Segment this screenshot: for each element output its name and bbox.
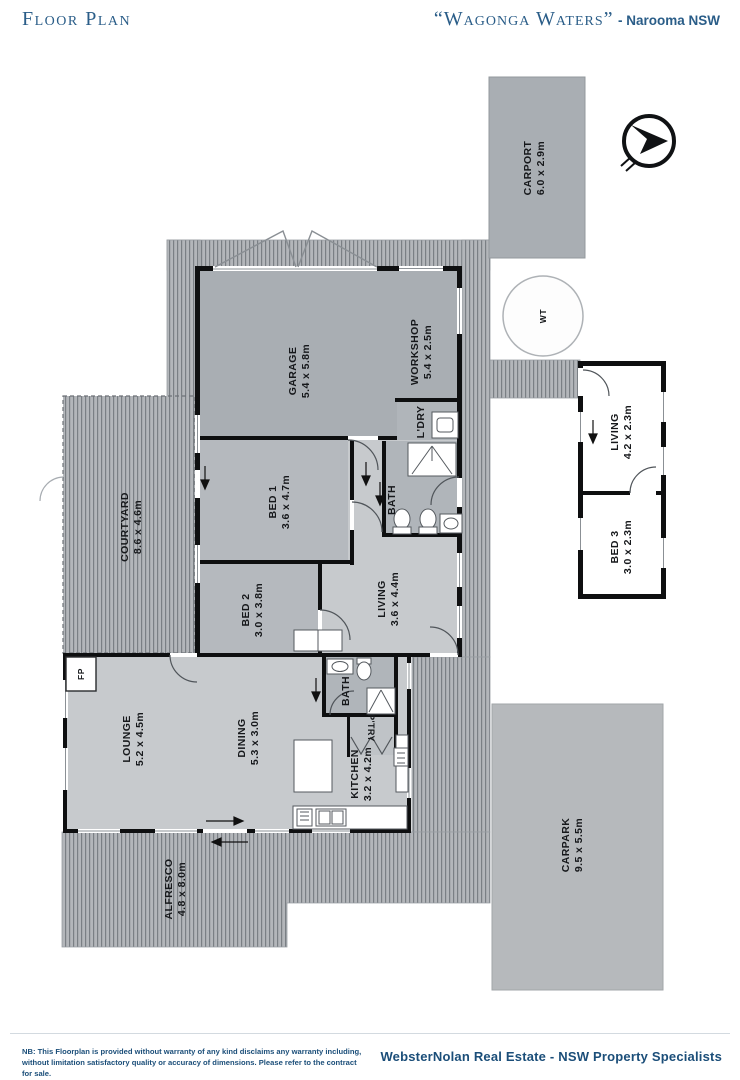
arrow-down-icon xyxy=(589,420,597,443)
svg-text:5.4 x 2.5m: 5.4 x 2.5m xyxy=(422,325,434,379)
svg-text:4.2 x 2.3m: 4.2 x 2.3m xyxy=(622,405,634,459)
room-label-carpark: CARPARK 9.5 x 5.5m xyxy=(560,818,585,873)
room-label-dining: DINING 5.3 x 3.0m xyxy=(236,711,261,765)
disclaimer-line-1: NB: This Floorplan is provided without w… xyxy=(22,1046,367,1057)
alfresco-deck xyxy=(62,832,490,947)
disclaimer-text: NB: This Floorplan is provided without w… xyxy=(22,1046,367,1079)
svg-text:4.8 x 8.0m: 4.8 x 8.0m xyxy=(176,862,188,916)
laundry-tub-icon xyxy=(432,412,458,438)
room-label-bed3: BED 3 3.0 x 2.3m xyxy=(609,520,634,574)
svg-text:8.6 x 4.6m: 8.6 x 4.6m xyxy=(132,500,144,554)
svg-text:BATH: BATH xyxy=(340,676,352,706)
svg-text:CARPORT: CARPORT xyxy=(522,140,534,195)
svg-text:GARAGE: GARAGE xyxy=(287,347,299,396)
water-tank-label: WT xyxy=(538,309,548,324)
property-heading: “Wagonga Waters” - Narooma NSW xyxy=(434,8,720,31)
kitchen-bench xyxy=(394,735,408,792)
footer-divider xyxy=(10,1033,730,1034)
north-arrow-icon xyxy=(621,116,674,171)
floor-plan-canvas: CARPORT 6.0 x 2.9m GARAGE 5.4 x 5.8m WOR… xyxy=(0,0,740,1080)
svg-text:5.2 x 4.5m: 5.2 x 4.5m xyxy=(134,712,146,766)
room-label-kitchen: KITCHEN 3.2 x 4.2m xyxy=(349,747,374,801)
svg-text:LOUNGE: LOUNGE xyxy=(121,715,133,762)
svg-text:6.0 x 2.9m: 6.0 x 2.9m xyxy=(535,141,547,195)
svg-text:3.6 x 4.7m: 3.6 x 4.7m xyxy=(280,475,292,529)
room-label-carport: CARPORT 6.0 x 2.9m xyxy=(522,140,547,195)
svg-text:P'TRY: P'TRY xyxy=(366,714,376,742)
floorplan-page: Floor Plan “Wagonga Waters” - Narooma NS… xyxy=(0,0,740,1080)
basin-icon xyxy=(327,659,353,674)
deck-top-band xyxy=(167,240,490,270)
room-label-bath1: BATH xyxy=(386,485,398,515)
page-header: Floor Plan “Wagonga Waters” - Narooma NS… xyxy=(22,8,720,31)
room-label-workshop: WORKSHOP 5.4 x 2.5m xyxy=(409,319,434,385)
svg-text:CARPARK: CARPARK xyxy=(560,818,572,873)
svg-text:WT: WT xyxy=(538,309,548,324)
deck-rear xyxy=(412,657,490,832)
agency-name: WebsterNolan Real Estate - NSW Property … xyxy=(380,1049,722,1064)
svg-text:5.3 x 3.0m: 5.3 x 3.0m xyxy=(249,711,261,765)
svg-text:BATH: BATH xyxy=(386,485,398,515)
svg-text:3.0 x 3.8m: 3.0 x 3.8m xyxy=(253,583,265,637)
room-label-pantry: P'TRY xyxy=(366,714,376,742)
kitchen-sink-bench xyxy=(293,806,407,829)
svg-text:LIVING: LIVING xyxy=(609,413,621,450)
svg-text:WORKSHOP: WORKSHOP xyxy=(409,319,421,385)
svg-text:ALFRESCO: ALFRESCO xyxy=(163,859,175,920)
room-label-living2: LIVING 4.2 x 2.3m xyxy=(609,405,634,459)
shower-icon xyxy=(367,688,395,714)
svg-text:3.0 x 2.3m: 3.0 x 2.3m xyxy=(622,520,634,574)
svg-text:L'DRY: L'DRY xyxy=(415,406,427,439)
property-location: - Narooma NSW xyxy=(618,13,720,28)
svg-text:9.5 x 5.5m: 9.5 x 5.5m xyxy=(573,818,585,872)
svg-text:KITCHEN: KITCHEN xyxy=(349,749,361,798)
room-label-courtyard: COURTYARD 8.6 x 4.6m xyxy=(119,492,144,562)
svg-text:BED 3: BED 3 xyxy=(609,531,621,564)
room-label-laundry: L'DRY xyxy=(415,406,427,439)
svg-text:FP: FP xyxy=(76,668,86,680)
deck-right-strip xyxy=(462,240,490,657)
svg-text:COURTYARD: COURTYARD xyxy=(119,492,131,562)
svg-text:5.4 x 5.8m: 5.4 x 5.8m xyxy=(300,344,312,398)
kitchen-island xyxy=(294,740,332,792)
room-label-bath2: BATH xyxy=(340,676,352,706)
wardrobe xyxy=(294,630,342,651)
svg-text:3.2 x 4.2m: 3.2 x 4.2m xyxy=(362,747,374,801)
shower-icon xyxy=(408,443,456,476)
toilet-icon xyxy=(357,658,371,680)
svg-text:LIVING: LIVING xyxy=(376,580,388,617)
svg-text:BED 1: BED 1 xyxy=(267,486,279,519)
disclaimer-line-2: without limitation satisfactory quality … xyxy=(22,1057,367,1079)
room-label-alfresco: ALFRESCO 4.8 x 8.0m xyxy=(163,859,188,920)
property-name: “Wagonga Waters” xyxy=(434,8,614,30)
room-label-lounge: LOUNGE 5.2 x 4.5m xyxy=(121,712,146,766)
walkway xyxy=(490,360,580,398)
basin-icon xyxy=(440,514,462,533)
fireplace-label: FP xyxy=(76,668,86,680)
page-title: Floor Plan xyxy=(22,8,131,31)
courtyard-gate-arc xyxy=(40,477,63,501)
toilet-icon xyxy=(419,509,437,534)
svg-text:DINING: DINING xyxy=(236,718,248,757)
room-label-garage: GARAGE 5.4 x 5.8m xyxy=(287,344,312,398)
svg-text:BED 2: BED 2 xyxy=(240,594,252,627)
svg-text:3.6 x 4.4m: 3.6 x 4.4m xyxy=(389,572,401,626)
